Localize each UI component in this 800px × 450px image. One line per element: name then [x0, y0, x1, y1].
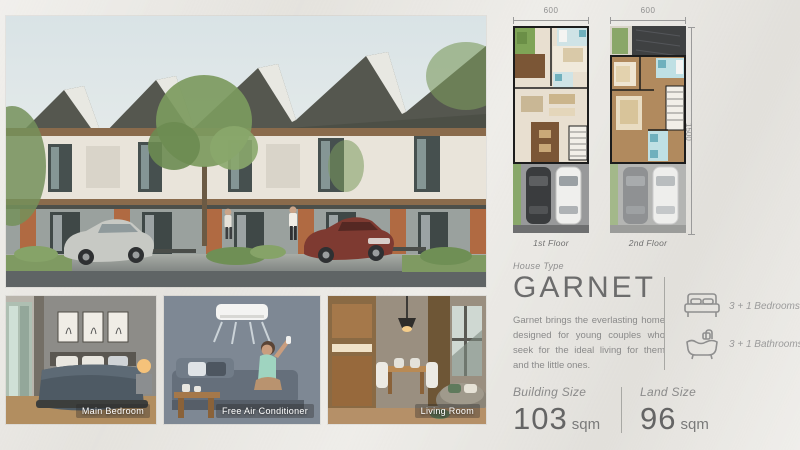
- wall-frames: [58, 312, 128, 342]
- land-size-unit: sqm: [680, 416, 708, 433]
- stairs: [569, 126, 587, 160]
- townhouse-illustration: [6, 16, 486, 287]
- car-gray: [623, 167, 648, 224]
- plan1-floor-label: 1st Floor: [513, 238, 589, 248]
- photo-caption: Main Bedroom: [76, 404, 150, 418]
- sizes-divider: [621, 387, 622, 433]
- feature-bathrooms: 3 + 1 Bathrooms: [681, 327, 800, 361]
- floorplan-first-drawing: [513, 26, 589, 233]
- bathrooms-label: 3 + 1 Bathrooms: [729, 339, 800, 350]
- bathtub-icon: [681, 327, 723, 361]
- plan1-dimension-line: [513, 17, 589, 24]
- bedrooms-label: 3 + 1 Bedrooms: [729, 301, 800, 312]
- bed: [36, 352, 148, 411]
- land-size: Land Size 96sqm: [640, 385, 709, 437]
- house-type-name: GARNET: [513, 272, 665, 304]
- plan2-floor-label: 2nd Floor: [610, 238, 686, 248]
- photo-main-bedroom: Main Bedroom: [6, 296, 156, 424]
- photo-living-room: Living Room: [328, 296, 486, 424]
- car-dark: [526, 167, 551, 224]
- double-bed-icon: [681, 289, 723, 323]
- building-size-label: Building Size: [513, 385, 600, 399]
- floorplan-first: 600: [513, 6, 589, 248]
- car-white-2: [653, 167, 678, 224]
- photo-air-conditioner: Free Air Conditioner: [164, 296, 320, 424]
- features-divider: [664, 277, 665, 370]
- floorplan-second-drawing: [610, 26, 686, 233]
- car-white: [556, 167, 581, 224]
- feature-bedrooms: 3 + 1 Bedrooms: [681, 289, 800, 323]
- house-type-label: House Type: [513, 261, 665, 271]
- photo-caption: Living Room: [415, 404, 480, 418]
- house-description: Garnet brings the everlasting home desig…: [513, 313, 665, 374]
- photo-caption: Free Air Conditioner: [216, 404, 314, 418]
- window: [452, 306, 482, 376]
- building-size: Building Size 103sqm: [513, 385, 600, 437]
- land-size-value: 96: [640, 401, 676, 436]
- stairs-2: [666, 86, 684, 130]
- bedside-lamp: [136, 359, 152, 394]
- building-size-unit: sqm: [572, 416, 600, 433]
- plan2-dimension-line: [610, 17, 686, 24]
- floorplan-second: 600: [610, 6, 686, 248]
- building-size-value: 103: [513, 401, 568, 436]
- house-type-section: House Type GARNET Garnet brings the ever…: [513, 261, 665, 373]
- hero-townhouse-render: [6, 16, 486, 287]
- plans-height-dimension: 1500: [688, 27, 702, 235]
- land-size-label: Land Size: [640, 385, 709, 399]
- plan1-width-dimension: 600: [513, 6, 589, 16]
- plan2-width-dimension: 600: [610, 6, 686, 16]
- plans-height-dimension-label: 1500: [684, 123, 693, 141]
